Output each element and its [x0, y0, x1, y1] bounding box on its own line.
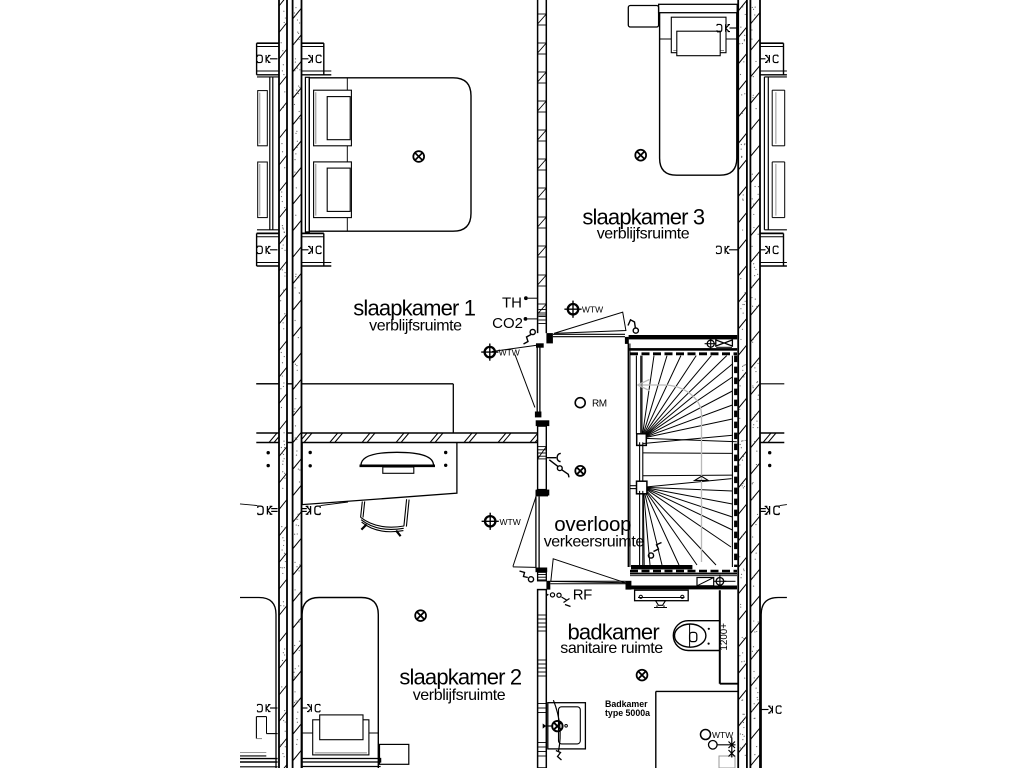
svg-text:RF: RF [573, 586, 592, 603]
svg-text:sanitaire ruimte: sanitaire ruimte [560, 640, 663, 657]
svg-text:1200+: 1200+ [719, 623, 730, 651]
svg-text:type 5000a: type 5000a [605, 708, 650, 718]
svg-text:TH: TH [502, 295, 522, 312]
svg-text:verblijfsruimte: verblijfsruimte [597, 226, 690, 243]
svg-text:verkeersruimte: verkeersruimte [544, 533, 645, 550]
svg-text:verblijfsruimte: verblijfsruimte [369, 317, 462, 334]
svg-text:WTW: WTW [582, 305, 603, 315]
svg-text:WTW: WTW [712, 730, 733, 740]
svg-text:WTW: WTW [500, 517, 521, 527]
svg-text:RM: RM [592, 399, 607, 410]
svg-text:CO2: CO2 [492, 315, 523, 332]
svg-text:verblijfsruimte: verblijfsruimte [413, 687, 506, 704]
